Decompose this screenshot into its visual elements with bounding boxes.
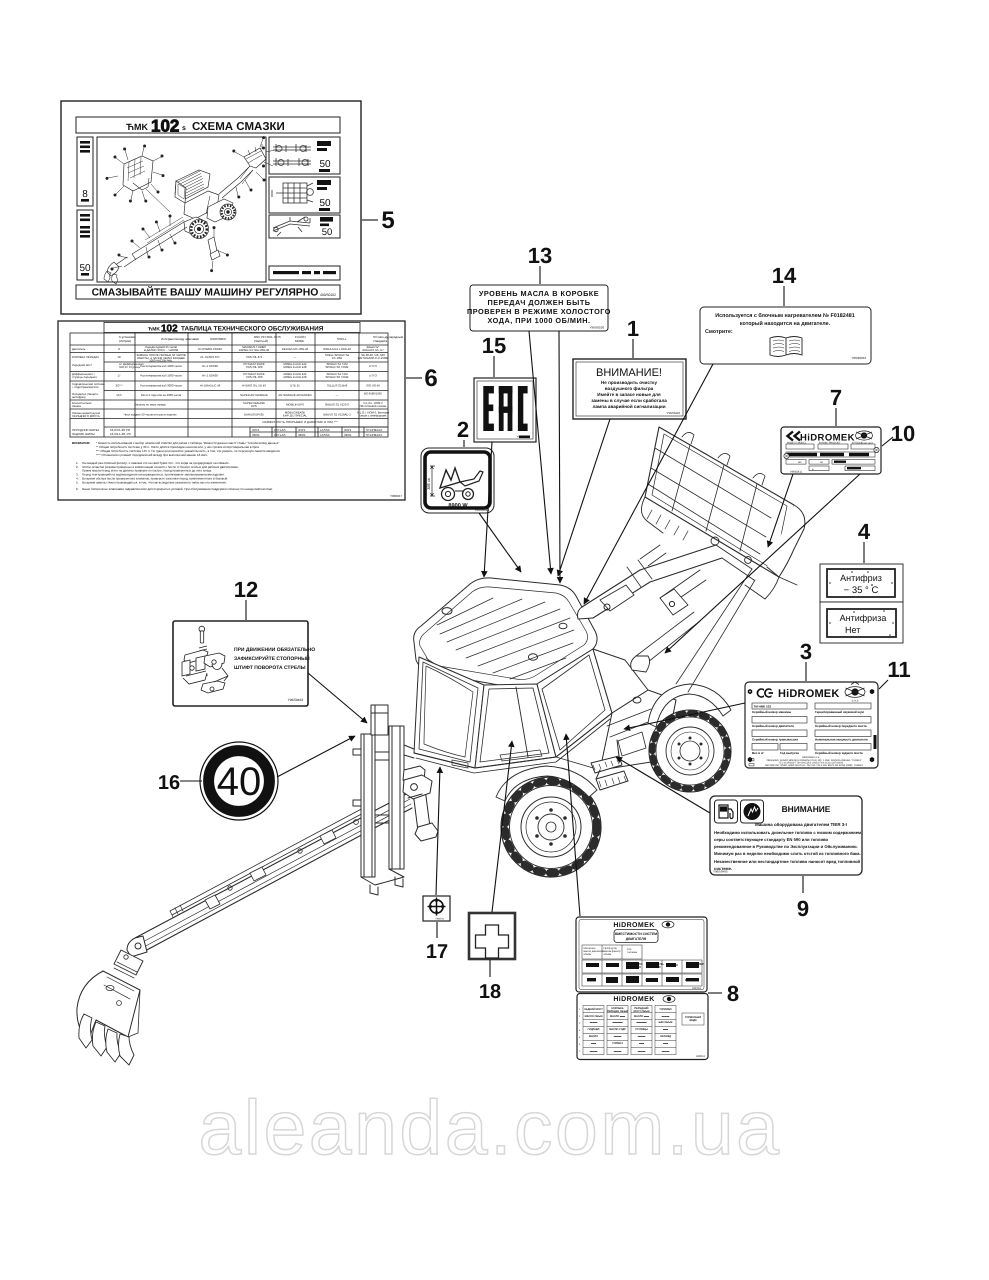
svg-text:КОРОБКА ПЕРЕДАЧ: КОРОБКА ПЕРЕДАЧ — [72, 355, 99, 359]
svg-text:ЕN590: ЕN590 — [652, 965, 661, 969]
svg-text:МОСТ ОБЪМ: МОСТ ОБЪМ — [634, 1010, 650, 1013]
svg-text:GМ ЅЕRVIЅТ IZМIR. АNКР ЅЕLСULL: GМ ЅЕRVIЅТ IZМIR. АNКР ЅЕLСULL. СН.LЅЕ Т… — [765, 764, 864, 767]
svg-text:Раз интервалом каб 3000 часов: Раз интервалом каб 3000 часов — [140, 384, 182, 388]
svg-text:▬▬▬: ▬▬▬ — [590, 1021, 598, 1024]
svg-text:В НОМ / РRОDUСТ: В НОМ / РRОDUСТ — [819, 441, 841, 444]
svg-text:МАСЛО ГИДР: МАСЛО ГИДР — [609, 1028, 626, 1031]
svg-text:Y96/011: Y96/011 — [435, 918, 444, 921]
svg-text:Машина оборудована двигателем: Машина оборудована двигателем TIER 3-I — [755, 822, 847, 827]
svg-text:Интервал между заменами: Интервал между заменами — [161, 337, 199, 341]
svg-text:РСТLАЅ: РСТLАЅ — [274, 433, 286, 437]
svg-text:10W40: 10W40 — [632, 965, 641, 969]
svg-text:Гарантированный звуковой шум: Гарантированный звуковой шум — [815, 710, 865, 714]
svg-text:ПРИ ДВИЖЕНИИ ОБЯЗАТЕЛЬНО: ПРИ ДВИЖЕНИИ ОБЯЗАТЕЛЬНО — [234, 647, 315, 653]
svg-text:ВЅ ▬▬: ВЅ ▬▬ — [685, 978, 695, 982]
svg-text:замены в случае если сработала: замены в случае если сработала — [591, 398, 667, 403]
svg-text:▬▬▬: ▬▬▬ — [614, 1050, 622, 1053]
svg-text:СМАЗЫВАЙТЕ ВАШУ МАШИНУ РЕГУЛЯР: СМАЗЫВАЙТЕ ВАШУ МАШИНУ РЕГУЛЯРНО — [92, 286, 319, 299]
svg-text:7: 7 — [830, 385, 842, 410]
svg-text:SUPER ANTIFREEZE: SUPER ANTIFREEZE — [240, 393, 268, 397]
svg-text:Раз в 2 года или на 2000 час: Раз в 2 года или на 2000 часов — [141, 393, 182, 397]
svg-text:aleanda.com.ua: aleanda.com.ua — [199, 1085, 782, 1171]
svg-text:50: 50 — [79, 263, 91, 274]
svg-text:EPS: EPS — [251, 404, 257, 408]
svg-text:Нет: Нет — [845, 625, 860, 635]
svg-text:Y96/50446: Y96/50446 — [666, 411, 680, 415]
svg-text:▬▬▬: ▬▬▬ — [638, 1050, 646, 1053]
svg-text:MOBILIN EPS: MOBILIN EPS — [286, 403, 304, 407]
svg-text:УРОВЕНЬ МАСЛА В КОРОБКЕ: УРОВЕНЬ МАСЛА В КОРОБКЕ — [479, 289, 599, 298]
svg-text:SPIRAX S6 TXME: SPIRAX S6 TXME — [326, 375, 349, 379]
svg-text:Номинальная мощность двигателя: Номинальная мощность двигателя — [815, 738, 868, 742]
svg-text:топлива: топлива — [627, 951, 637, 954]
svg-text:ЗВН1: ЗВН1 — [298, 433, 306, 437]
svg-text:Во время замены тяжел производ: Во время замены тяжел производиться, в т… — [82, 481, 227, 485]
svg-text:ВОДА: ВОДА — [666, 978, 674, 982]
svg-text:ВНИМАНИЕ:: ВНИМАНИЕ: — [72, 441, 90, 445]
svg-text:ЋMK: ЋMK — [126, 122, 148, 132]
svg-text:ЗхО,8 / Ступица: ЗхО,8 / Ступица — [119, 365, 140, 369]
svg-text:ISO VG 46: ISO VG 46 — [366, 384, 380, 388]
svg-text:ПЕРЕДАЧ ДОЛЖЕН БЫТЬ: ПЕРЕДАЧ ДОЛЖЕН БЫТЬ — [487, 298, 590, 307]
svg-text:—: — — [294, 355, 297, 359]
svg-text:ШТИФТ ПОВОРОТА СТРЕЛЫ: ШТИФТ ПОВОРОТА СТРЕЛЫ — [234, 665, 306, 671]
svg-text:ПЕРЕДНЕГО МОСТА: ПЕРЕДНЕГО МОСТА — [72, 414, 100, 418]
svg-text:HI–TRANS 871: HI–TRANS 871 — [200, 355, 220, 359]
svg-text:Двигатель: Двигатель — [72, 347, 86, 351]
svg-text:МАСЛО ▬▬: МАСЛО ▬▬ — [634, 1015, 649, 1018]
svg-text:GADUS S2 V220 S: GADUS S2 V220 S — [325, 403, 349, 407]
svg-text:▬▬: ▬▬ — [639, 1042, 645, 1045]
svg-text:DIESEL EXTRA 10W-40: DIESEL EXTRA 10W-40 — [239, 348, 270, 352]
svg-text:Серийный номер двигателя: Серийный номер двигателя — [752, 724, 794, 728]
svg-text:16,9/14–28, РR: 16,9/14–28, РR — [110, 432, 132, 436]
svg-text:12: 12 — [234, 577, 258, 602]
svg-text:8900 W: 8900 W — [448, 503, 468, 509]
svg-text:HYDRO OIL XD 46: HYDRO OIL XD 46 — [242, 384, 266, 388]
svg-text:15: 15 — [482, 333, 506, 358]
svg-text:ТОПЛИВО: ТОПЛИВО — [659, 1008, 672, 1011]
svg-text:50: 50 — [319, 159, 331, 170]
svg-text:Используется с блочным нагр: Используется с блочным нагревателем № F0… — [715, 313, 855, 319]
svg-text:Некачественное или нестандартн: Некачественное или нестандартное топливо… — [714, 859, 861, 864]
svg-text:Антифриз: Антифриз — [840, 573, 882, 583]
svg-text:ЅТАРМАХХ: ЅТАРМАХХ — [366, 428, 382, 432]
svg-text:8: 8 — [118, 347, 120, 351]
svg-text:HiDROMEK: HiDROMEK — [613, 921, 654, 929]
svg-text:MOBIL FLUID 428: MOBIL FLUID 428 — [284, 375, 307, 379]
svg-text:HI–Z 10W30: HI–Z 10W30 — [202, 374, 218, 378]
svg-text:ВНИМАНИЕ: ВНИМАНИЕ — [782, 804, 831, 814]
svg-text:ENDVS S2 V220AD 2: ENDVS S2 V220AD 2 — [323, 413, 351, 417]
svg-text:ЗНУ1: ЗНУ1 — [252, 428, 260, 432]
svg-text:LАЅЅА: LАЅЅА — [320, 428, 330, 432]
svg-text:ПРОВЕРЕН В РЕЖИМЕ ХОЛОСТОГО: ПРОВЕРЕН В РЕЖИМЕ ХОЛОСТОГО — [467, 307, 611, 316]
svg-text:Год выпуска: Год выпуска — [780, 751, 799, 755]
svg-text:Y96/50100: Y96/50100 — [589, 326, 604, 330]
svg-text:GM ЅСА/МО-С-С-25MB: GM ЅСА/МО-С-С-25MB — [358, 356, 389, 360]
svg-text:HI–DRAULIC 46: HI–DRAULIC 46 — [200, 384, 221, 388]
svg-text:Y96/50463: Y96/50463 — [288, 698, 304, 702]
svg-text:Минимум раз в неделю необходим: Минимум раз в неделю необходимо слить от… — [714, 851, 861, 856]
svg-text:▬▬▬▬: ▬▬▬▬ — [613, 1021, 624, 1024]
svg-text:ОХЛ: ОХЛ — [672, 963, 678, 967]
svg-text:Раз интервалом каб 1000 часов: Раз интервалом каб 1000 часов — [140, 374, 182, 378]
svg-text:DTE 25: DTE 25 — [290, 384, 300, 388]
svg-text:объём: объём — [604, 953, 612, 956]
svg-text:50: 50 — [322, 227, 333, 238]
svg-text:Смотрите:: Смотрите: — [705, 329, 733, 335]
svg-text:ТАБЛИЦА ТЕХНИЧЕСКОГО ОБСЛУЖИВА: ТАБЛИЦА ТЕХНИЧЕСКОГО ОБСЛУЖИВАНИЯ — [181, 326, 324, 333]
svg-text:▬▬: ▬▬ — [591, 1042, 597, 1045]
svg-text:3: 3 — [800, 639, 812, 664]
svg-text:400/50102: 400/50102 — [320, 293, 336, 297]
svg-text:SPIRAX S6 TXME: SPIRAX S6 TXME — [326, 365, 349, 369]
svg-text:▬▬: ▬▬ — [663, 1028, 669, 1031]
svg-text:ACEA E3, E5, E7: ACEA E3, E5, E7 — [362, 348, 384, 352]
svg-text:Y08/30013: Y08/30013 — [474, 508, 489, 512]
svg-text:− 35 ° C: − 35 ° C — [844, 585, 879, 596]
svg-text:HIDROMEK: HIDROMEK — [210, 337, 226, 341]
svg-text:ступицы переднего: ступицы переднего — [72, 375, 97, 379]
svg-text:6.: 6. — [76, 487, 79, 491]
svg-text:LАЅЅА: LАЅЅА — [320, 433, 330, 437]
svg-text:смазк с свинфарами: смазк с свинфарами — [360, 414, 387, 418]
svg-text:16: 16 — [158, 772, 180, 794]
svg-text:—: — — [336, 393, 339, 397]
svg-text:ЗАФИКСИРУЙТЕ СТОПОРНЫЙ: ЗАФИКСИРУЙТЕ СТОПОРНЫЙ — [234, 655, 310, 662]
svg-text:ГИДРАВЛ: ГИДРАВЛ — [588, 1028, 600, 1031]
svg-text:рекомендованное в Руководстве: рекомендованное в Руководстве по Эксплуа… — [714, 844, 858, 849]
svg-text:ЅТАРМАХХ: ЅТАРМАХХ — [366, 433, 382, 437]
svg-text:ЗАДНИЙ МОСТ: ЗАДНИЙ МОСТ — [584, 1007, 603, 1011]
svg-text:ВНИМАНИЕ!: ВНИМАНИЕ! — [596, 367, 662, 379]
svg-text:▬▬: ▬▬ — [663, 1042, 669, 1045]
svg-text:ЗЛУ1: ЗЛУ1 — [344, 428, 352, 432]
svg-text:ANTIFREEZE ADVANCED: ANTIFREEZE ADVANCED — [278, 393, 311, 397]
svg-text:МАСЛО ▬▬: МАСЛО ▬▬ — [610, 1015, 625, 1018]
svg-text:▬▬▬▬: ▬▬▬▬ — [637, 1021, 648, 1024]
svg-text:▬: ▬ — [591, 978, 594, 982]
svg-text:16,5: 16,5 — [116, 393, 122, 397]
svg-text:кг: кг — [812, 468, 814, 471]
svg-text:CX 10W: CX 10W — [332, 356, 343, 360]
svg-text:▬▬▬: ▬▬▬ — [638, 1035, 646, 1038]
svg-text:серы соответствующее стандарту: серы соответствующее стандарту EN 590 ил… — [714, 837, 829, 842]
svg-text:18: 18 — [479, 981, 501, 1003]
svg-text:который находится на двигат: который находится на двигателе. — [740, 320, 831, 327]
svg-text:смазка: смазка — [72, 404, 81, 408]
svg-text:Смазать по мере нужды: Смазать по мере нужды — [134, 403, 165, 407]
svg-text:TWS OIL 871: TWS OIL 871 — [246, 355, 263, 359]
svg-text:13: 13 — [528, 243, 552, 268]
svg-text:ДВИГАТЕЛЯ: ДВИГАТЕЛЯ — [626, 937, 647, 941]
svg-text:MOBIL: MOBIL — [295, 339, 305, 343]
svg-text:Антифриза: Антифриза — [840, 613, 887, 623]
svg-text:Вес в кг: Вес в кг — [752, 751, 764, 755]
svg-text:МАСЛО ОБЪМ: МАСЛО ОБЪМ — [585, 1015, 603, 1018]
svg-text:Ѕ.А.Ѕ: Ѕ.А.Ѕ — [852, 700, 859, 703]
svg-text:102: 102 — [151, 117, 179, 136]
svg-text:(Литров): (Литров) — [119, 339, 131, 343]
svg-text:АСЕА: АСЕА — [628, 979, 636, 983]
svg-text:СТУПИЦЫ: СТУПИЦЫ — [635, 1028, 648, 1031]
svg-text:4НУ1: 4НУ1 — [298, 428, 306, 432]
svg-text:ѕ: ѕ — [182, 125, 186, 132]
svg-text:2.: 2. — [76, 465, 79, 469]
svg-text:HI–Z 10W30: HI–Z 10W30 — [202, 364, 218, 368]
svg-text:SHELL: SHELL — [337, 337, 347, 341]
svg-text:6: 6 — [424, 365, 437, 392]
svg-text:антифриз): антифриз) — [72, 395, 86, 399]
svg-text:объём: объём — [584, 953, 592, 956]
svg-text:HiDROMEK: HiDROMEK — [778, 688, 840, 700]
svg-text:▬▬▬: ▬▬▬ — [662, 1015, 670, 1018]
svg-text:(Частный): (Частный) — [254, 339, 268, 343]
svg-text:4: 4 — [858, 519, 871, 544]
svg-text:Y08/20042: Y08/20042 — [851, 356, 866, 360]
svg-text:ВS 6580/1992: ВS 6580/1992 — [364, 392, 382, 396]
svg-text:▬▬▬: ▬▬▬ — [614, 1035, 622, 1038]
svg-text:ТОСОЛ: ТОСОЛ — [645, 978, 655, 982]
svg-text:DELVAC MX 10W-40: DELVAC MX 10W-40 — [282, 347, 309, 351]
svg-text:10: 10 — [891, 421, 915, 446]
svg-text:40: 40 — [217, 760, 262, 804]
svg-text:1000 ЧАСОВ РАБ.: 1000 ЧАСОВ РАБ. — [149, 359, 173, 363]
svg-text:HI POWER 10W40: HI POWER 10W40 — [198, 347, 222, 351]
svg-text:50: 50 — [319, 198, 331, 209]
svg-text:Передний мост: Передний мост — [72, 363, 93, 367]
svg-text:ТОРМОЗ: ТОРМОЗ — [612, 1042, 623, 1045]
svg-text:БАК ОБЪМ: БАК ОБЪМ — [659, 1021, 673, 1024]
svg-text:Серийный номер трансмиссии: Серийный номер трансмиссии — [752, 738, 798, 742]
svg-text:MOBIL FLUID 428: MOBIL FLUID 428 — [284, 365, 307, 369]
svg-text:МАСЛО: МАСЛО — [589, 1035, 598, 1038]
svg-text:8: 8 — [82, 189, 88, 200]
svg-text:9: 9 — [797, 896, 809, 921]
svg-text:DARIUS EP535: DARIUS EP535 — [244, 413, 264, 417]
svg-text:СХЕМА СМАЗКИ: СХЕМА СМАЗКИ — [192, 121, 285, 133]
svg-text:15W40: 15W40 — [608, 979, 617, 983]
svg-text:МОДЕЛ / МОDЕL: МОДЕЛ / МОDЕL — [787, 441, 807, 444]
svg-text:ТМ НМК 102: ТМ НМК 102 — [754, 705, 772, 709]
svg-text:Y000047: Y000047 — [390, 494, 402, 498]
svg-text:Y96/50495: Y96/50495 — [713, 870, 728, 874]
svg-text:11: 11 — [887, 657, 910, 682]
svg-text:РАЗМЕРНОСТЬ ПОКРЫШЕК И ДАВЛ: РАЗМЕРНОСТЬ ПОКРЫШЕК И ДАВЛЕНИЕ В НИХ **… — [262, 420, 338, 424]
svg-text:Серийный номер переднего моста: Серийный номер переднего моста — [815, 724, 867, 728]
svg-text:ЗО***: ЗО*** — [115, 384, 123, 388]
svg-text:Раз интервалом каб 1000 часов: Раз интервалом каб 1000 часов — [140, 364, 182, 368]
svg-text:Y09/50015: Y09/50015 — [516, 435, 530, 439]
svg-text:HiDROMEK: HiDROMEK — [613, 995, 654, 1003]
svg-text:Выше поперечные клапанами гидр: Выше поперечные клапанами гидравлических… — [82, 487, 273, 491]
svg-text:ХОДА, ПРИ 1000 ОБ/МИН.: ХОДА, ПРИ 1000 ОБ/МИН. — [488, 316, 591, 325]
svg-text:НМ/012: НМ/012 — [696, 1055, 706, 1058]
svg-text:2: 2 — [457, 417, 469, 442]
svg-text:17: 17 — [117, 374, 121, 378]
svg-text:5.: 5. — [76, 481, 79, 485]
svg-text:Необходимо использовать дизель: Необходимо использовать дизельное топлив… — [714, 830, 861, 835]
svg-text:ОХЛАЖД: ОХЛАЖД — [660, 1035, 671, 1038]
svg-text:ЖИДК: ЖИДК — [689, 1019, 697, 1022]
svg-text:ЋMK: ЋMK — [148, 327, 161, 333]
svg-text:НВ литиевой основе: НВ литиевой основе — [360, 404, 387, 408]
svg-text:1: 1 — [627, 316, 639, 341]
svg-text:ВМЕСТИМОСТИ СИСТЕМ: ВМЕСТИМОСТИ СИСТЕМ — [615, 932, 657, 936]
svg-text:TELLUS S2 В46: TELLUS S2 В46 — [327, 384, 348, 388]
svg-text:+ гидротрансмиссия: + гидротрансмиссия — [72, 385, 99, 389]
svg-text:▬▬▬: ▬▬▬ — [590, 1050, 598, 1053]
svg-text:стандарта: стандарта — [373, 339, 388, 343]
svg-text:385 ск: 385 ск — [426, 478, 431, 490]
svg-text:лампа аварийной сигнализации: лампа аварийной сигнализации — [592, 404, 665, 409]
svg-text:EHP ZEJ SPECIAL: EHP ZEJ SPECIAL — [283, 414, 307, 418]
svg-text:ЗВН1: ЗВН1 — [344, 433, 352, 437]
svg-text:**** Отношения к решают перед: **** Отношения к решают передовлений меж… — [96, 453, 208, 457]
svg-text:UTTO: UTTO — [369, 364, 377, 368]
svg-text:5: 5 — [381, 207, 394, 234]
svg-text:Серийный номер машины: Серийный номер машины — [752, 710, 792, 714]
svg-text:НМ/В2411: НМ/В2411 — [790, 471, 803, 474]
svg-text:НМ/011: НМ/011 — [692, 987, 701, 990]
svg-text:ПЕРЕДАЧ ОБЪМ: ПЕРЕДАЧ ОБЪМ — [607, 1010, 628, 1013]
svg-text:РСТLАЅ: РСТLАЅ — [274, 428, 286, 432]
svg-text:TWS OIL 500: TWS OIL 500 — [246, 375, 263, 379]
svg-text:▬▬▬: ▬▬▬ — [662, 1050, 670, 1053]
svg-text:В ГОД / У: В ГОД / У — [852, 441, 863, 444]
svg-text:RIMULA R4 L 10W-40: RIMULA R4 L 10W-40 — [323, 347, 351, 351]
svg-text:Имейте в запасе новые для: Имейте в запасе новые для — [597, 392, 661, 397]
svg-text:UTTO: UTTO — [369, 374, 377, 378]
svg-text:-35: -35 — [692, 965, 696, 969]
svg-text:ЗАДНИЕ ШИНЫ: ЗАДНИЕ ШИНЫ — [72, 432, 95, 436]
svg-text:14: 14 — [772, 263, 797, 288]
svg-text:18: 18 — [117, 355, 121, 359]
svg-text:TWS OIL 500: TWS OIL 500 — [246, 365, 263, 369]
svg-text:Числ каждые 50 часов или раз: Числ каждые 50 часов или раз в неделю — [124, 413, 177, 417]
svg-text:Серийный номер заднего моста: Серийный номер заднего моста — [815, 751, 863, 755]
svg-text:Не производить очистку: Не производить очистку — [601, 380, 658, 385]
svg-text:м ДАЛЕЕ ПОСЛ ... ЧАСОВ: м ДАЛЕЕ ПОСЛ ... ЧАСОВ — [144, 348, 178, 352]
svg-text:воздушного фильтра: воздушного фильтра — [605, 386, 654, 391]
svg-text:17: 17 — [426, 941, 448, 963]
svg-text:ЗВН1: ЗВН1 — [252, 433, 260, 437]
svg-text:8: 8 — [727, 981, 739, 1006]
